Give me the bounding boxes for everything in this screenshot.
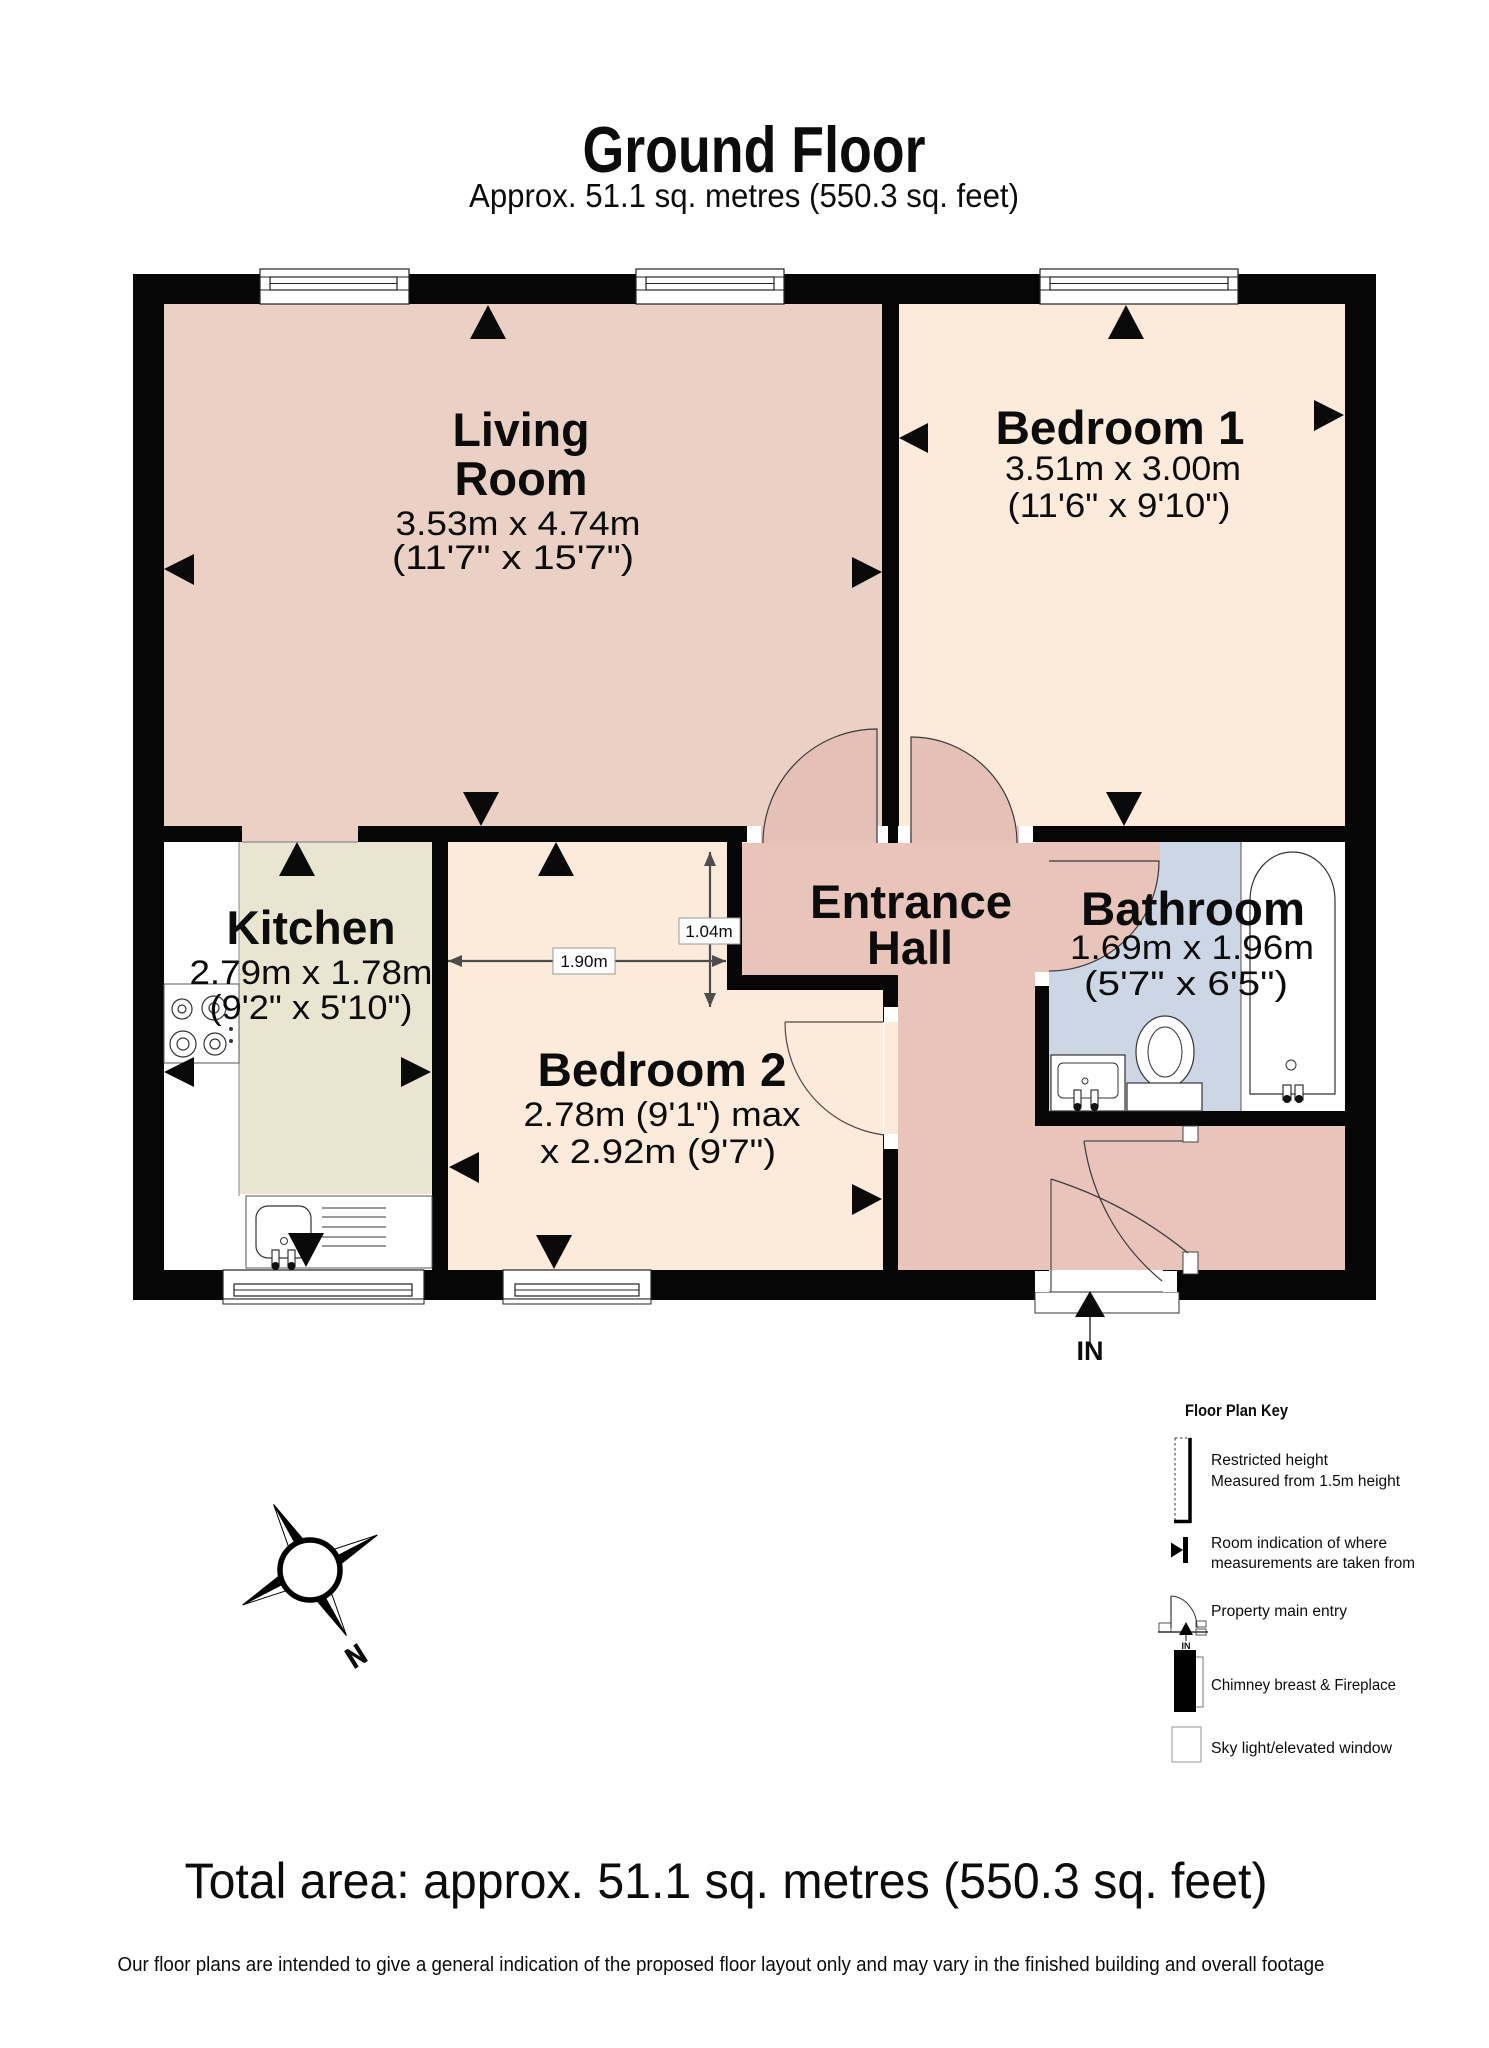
- svg-text:Hall: Hall: [867, 921, 953, 974]
- svg-text:Approx. 51.1 sq. metres (550.3: Approx. 51.1 sq. metres (550.3 sq. feet): [469, 177, 1019, 214]
- svg-text:x 2.92m (9'7"): x 2.92m (9'7"): [540, 1133, 776, 1171]
- svg-text:(9'2" x 5'10"): (9'2" x 5'10"): [210, 989, 413, 1027]
- svg-text:1.90m: 1.90m: [560, 952, 607, 971]
- svg-text:Restricted height: Restricted height: [1211, 1452, 1329, 1469]
- svg-text:Bedroom 2: Bedroom 2: [538, 1043, 787, 1096]
- svg-text:Bathroom: Bathroom: [1081, 882, 1305, 935]
- svg-text:Property main entry: Property main entry: [1211, 1603, 1347, 1620]
- svg-text:measurements are taken from: measurements are taken from: [1211, 1555, 1415, 1572]
- svg-text:Kitchen: Kitchen: [227, 901, 396, 954]
- svg-text:IN: IN: [1182, 1641, 1191, 1651]
- svg-text:(11'6" x 9'10"): (11'6" x 9'10"): [1008, 487, 1231, 525]
- svg-text:Room: Room: [455, 452, 588, 505]
- svg-text:Room indication of where: Room indication of where: [1211, 1535, 1387, 1552]
- svg-text:3.51m x 3.00m: 3.51m x 3.00m: [1005, 450, 1241, 488]
- svg-text:(11'7" x 15'7"): (11'7" x 15'7"): [392, 539, 634, 577]
- svg-text:3.53m x 4.74m: 3.53m x 4.74m: [396, 505, 641, 543]
- svg-text:Sky light/elevated window: Sky light/elevated window: [1211, 1740, 1393, 1757]
- svg-text:Measured from 1.5m height: Measured from 1.5m height: [1211, 1473, 1401, 1490]
- svg-text:1.04m: 1.04m: [685, 922, 732, 941]
- svg-text:(5'7" x 6'5"): (5'7" x 6'5"): [1084, 965, 1288, 1003]
- svg-text:IN: IN: [1077, 1336, 1104, 1366]
- svg-text:Floor Plan Key: Floor Plan Key: [1185, 1401, 1288, 1420]
- svg-text:2.78m (9'1") max: 2.78m (9'1") max: [524, 1096, 801, 1134]
- svg-text:Bedroom 1: Bedroom 1: [996, 401, 1245, 454]
- svg-text:1.69m x 1.96m: 1.69m x 1.96m: [1070, 929, 1314, 967]
- svg-text:Living: Living: [453, 403, 590, 456]
- svg-text:2.79m x 1.78m: 2.79m x 1.78m: [190, 954, 433, 992]
- svg-text:Ground Floor: Ground Floor: [583, 113, 926, 186]
- svg-text:Chimney breast & Fireplace: Chimney breast & Fireplace: [1211, 1677, 1396, 1694]
- svg-text:Total area: approx. 51.1 sq. m: Total area: approx. 51.1 sq. metres (550…: [185, 1853, 1268, 1909]
- svg-text:Our floor plans are intended t: Our floor plans are intended to give a g…: [118, 1954, 1325, 1976]
